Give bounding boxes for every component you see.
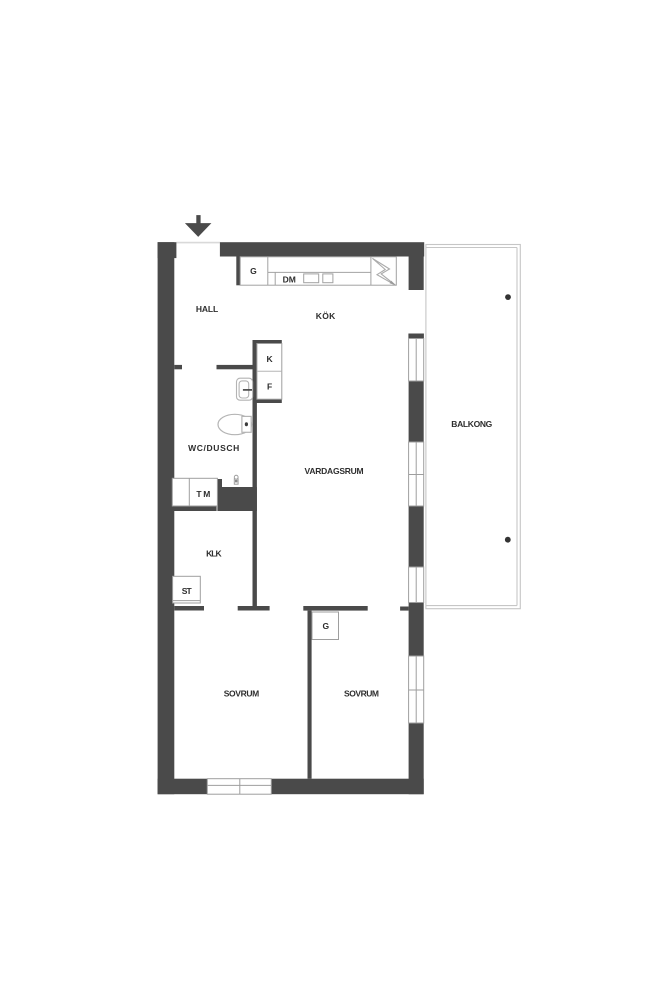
svg-text:F: F (267, 382, 272, 392)
svg-text:TM: TM (196, 489, 211, 499)
svg-text:WC/DUSCH: WC/DUSCH (188, 443, 240, 453)
svg-text:VARDAGSRUM: VARDAGSRUM (305, 466, 365, 476)
svg-text:KLK: KLK (206, 548, 223, 558)
svg-text:SOVRUM: SOVRUM (224, 689, 261, 699)
svg-text:BALKONG: BALKONG (451, 419, 493, 429)
svg-text:G: G (322, 621, 329, 631)
svg-text:HALL: HALL (196, 304, 219, 314)
svg-text:G: G (250, 266, 257, 276)
svg-text:DM: DM (283, 275, 297, 285)
svg-text:KÖK: KÖK (316, 311, 337, 321)
svg-text:K: K (267, 354, 274, 364)
svg-text:ST: ST (182, 586, 193, 596)
svg-text:SOVRUM: SOVRUM (344, 689, 380, 699)
